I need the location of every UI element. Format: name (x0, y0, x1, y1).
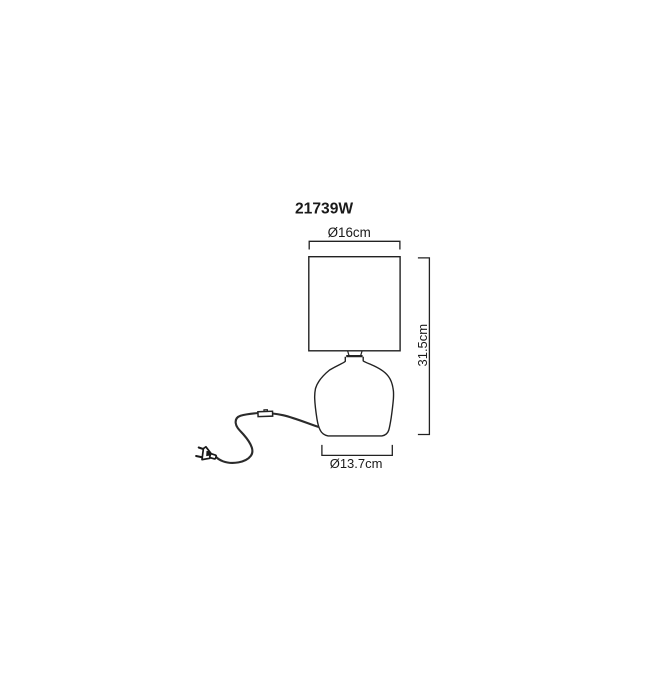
svg-text:Ø16cm: Ø16cm (328, 225, 371, 240)
svg-text:31.5cm: 31.5cm (415, 324, 430, 367)
svg-text:Ø13.7cm: Ø13.7cm (330, 456, 383, 471)
svg-text:21739W: 21739W (295, 201, 353, 218)
